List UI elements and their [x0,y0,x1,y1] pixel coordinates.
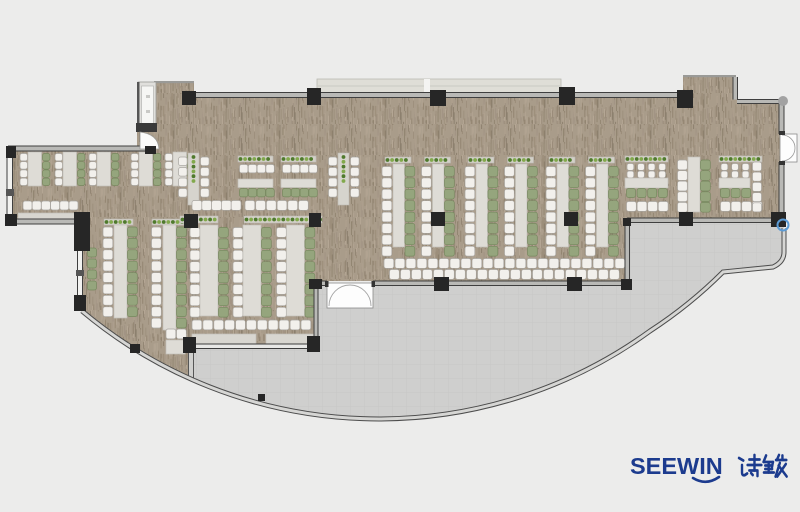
svg-text:SEEWIN: SEEWIN [630,453,723,479]
